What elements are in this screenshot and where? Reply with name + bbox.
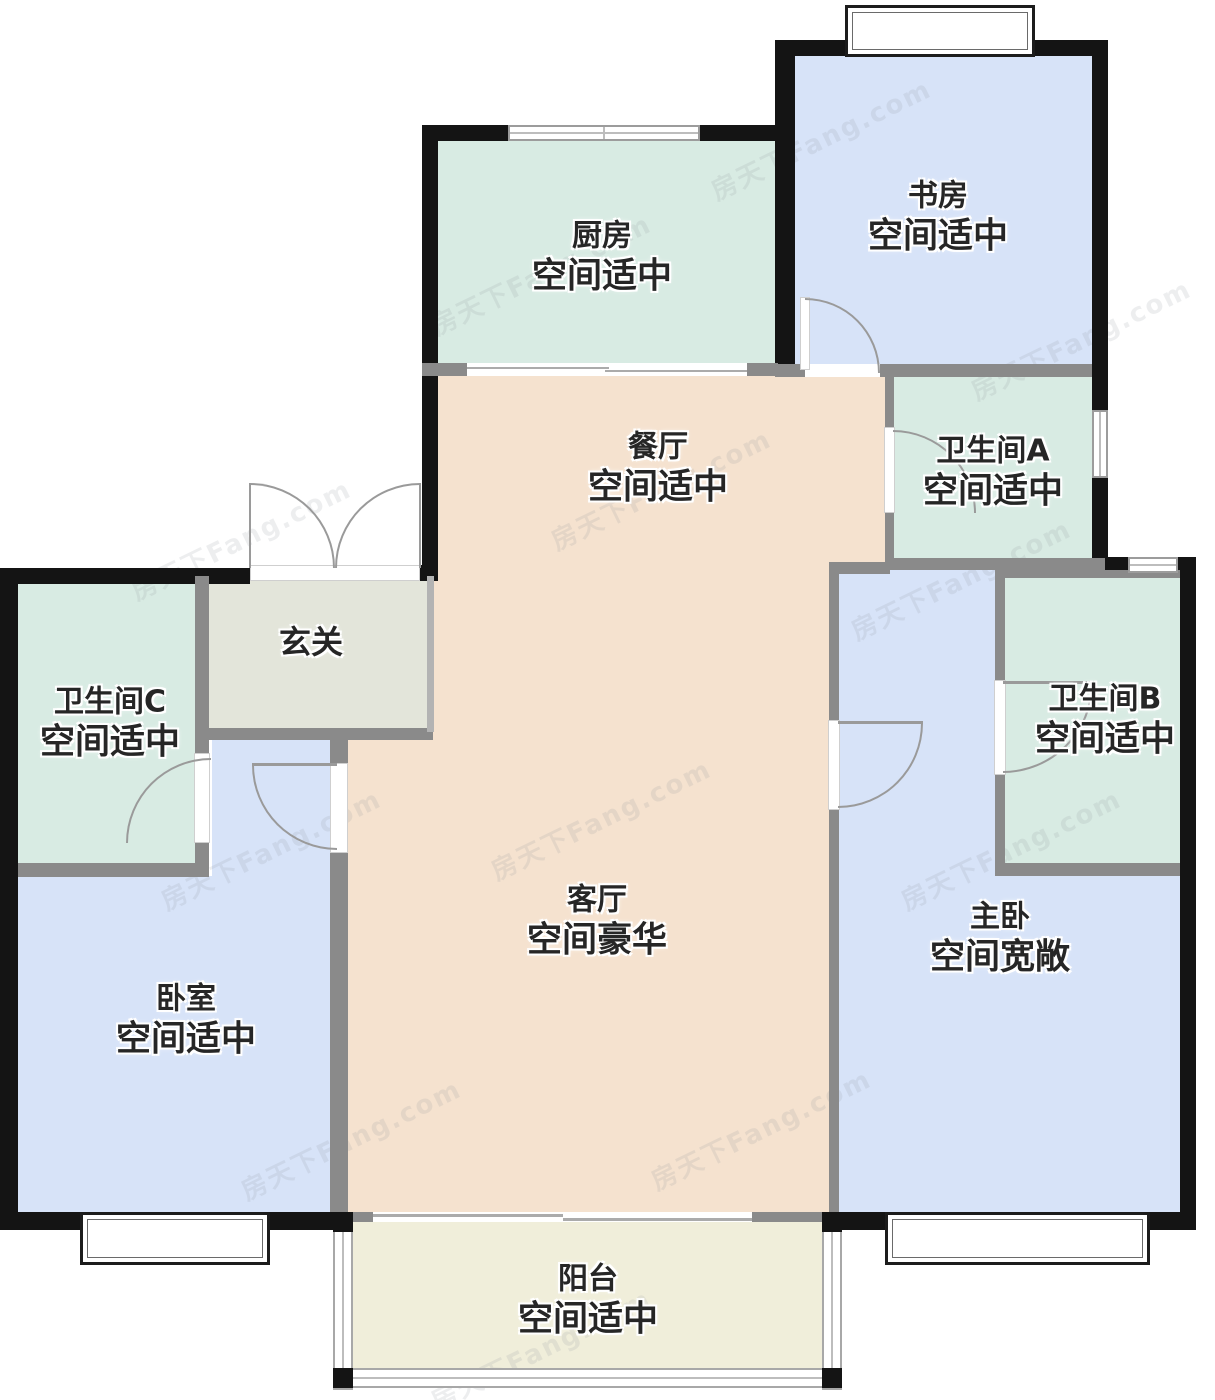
wall	[427, 576, 434, 732]
room-name: 卫生间A	[923, 432, 1063, 471]
room-name: 阳台	[518, 1260, 658, 1299]
wall	[422, 125, 438, 581]
balcony-corner-post	[333, 1212, 353, 1232]
wall	[752, 1212, 830, 1222]
kitchen-window	[508, 125, 700, 141]
balcony-window-right	[822, 1212, 842, 1390]
balcony-corner-post	[822, 1212, 842, 1232]
room-desc: 空间适中	[868, 216, 1008, 258]
room-label-dining: 餐厅 空间适中	[588, 428, 728, 509]
balcony-window-left	[333, 1212, 353, 1390]
room-label-bathroom-b: 卫生间B 空间适中	[1035, 680, 1175, 761]
balcony-corner-post	[822, 1368, 842, 1388]
wall	[1180, 557, 1196, 1230]
window-line	[892, 1219, 1143, 1258]
window-line	[831, 1214, 833, 1388]
room-desc: 空间适中	[1035, 719, 1175, 761]
floor-plan: 房天下Fang.com 房天下Fang.com 房天下Fang.com 房天下F…	[0, 0, 1215, 1400]
balcony-window-bottom	[333, 1368, 842, 1388]
room-label-master: 主卧 空间宽敞	[930, 898, 1070, 979]
room-name: 客厅	[527, 881, 667, 920]
room-label-living: 客厅 空间豪华	[527, 881, 667, 962]
room-label-study: 书房 空间适中	[868, 177, 1008, 258]
bathroom-b-window	[1128, 557, 1178, 573]
balcony-corner-post	[333, 1368, 353, 1388]
room-desc: 空间适中	[532, 256, 672, 298]
room-label-entry: 玄关	[279, 622, 343, 664]
room-living	[348, 740, 830, 1212]
wall	[829, 562, 839, 1212]
wall	[195, 728, 433, 740]
entry-door-arc	[250, 483, 335, 568]
room-name: 卫生间C	[40, 683, 180, 722]
wall	[0, 568, 250, 584]
wall	[995, 863, 1180, 876]
window-line	[87, 1219, 263, 1258]
room-desc: 空间适中	[588, 467, 728, 509]
kitchen-slider-line	[605, 370, 747, 372]
wall	[775, 40, 795, 375]
window-line	[342, 1214, 344, 1388]
room-name: 餐厅	[588, 428, 728, 467]
room-label-bathroom-c: 卫生间C 空间适中	[40, 683, 180, 764]
room-living-upper	[433, 578, 830, 740]
window-line	[335, 1377, 840, 1379]
room-label-balcony: 阳台 空间适中	[518, 1260, 658, 1341]
balcony-slider-line	[563, 1218, 752, 1221]
room-desc: 空间适中	[40, 722, 180, 764]
wall	[18, 863, 209, 877]
window-line	[1099, 412, 1101, 476]
room-name: 书房	[868, 177, 1008, 216]
window-line	[1130, 564, 1176, 566]
room-desc: 空间适中	[923, 471, 1063, 513]
window-line	[603, 127, 605, 139]
room-desc: 空间适中	[116, 1019, 256, 1061]
balcony-slider-line	[373, 1214, 563, 1217]
room-desc: 空间豪华	[527, 920, 667, 962]
room-label-bedroom: 卧室 空间适中	[116, 980, 256, 1061]
room-name: 玄关	[279, 622, 343, 664]
room-label-bathroom-a: 卫生间A 空间适中	[923, 432, 1063, 513]
master-bay-window	[885, 1212, 1150, 1265]
bedroom-bay-window	[80, 1212, 270, 1265]
window-line	[852, 12, 1028, 50]
study-bay-window	[845, 5, 1035, 57]
room-name: 厨房	[532, 217, 672, 256]
room-name: 主卧	[930, 898, 1070, 937]
wall	[885, 558, 1105, 570]
entry-door-arc	[335, 483, 420, 568]
wall	[0, 568, 18, 1230]
room-name: 卧室	[116, 980, 256, 1019]
room-desc: 空间宽敞	[930, 937, 1070, 979]
wall	[830, 562, 890, 574]
room-label-kitchen: 厨房 空间适中	[532, 217, 672, 298]
bathroom-a-window	[1092, 410, 1108, 478]
wall	[775, 40, 850, 56]
wall	[1092, 40, 1108, 410]
room-name: 卫生间B	[1035, 680, 1175, 719]
room-desc: 空间适中	[518, 1299, 658, 1341]
kitchen-slider-line	[467, 367, 609, 369]
